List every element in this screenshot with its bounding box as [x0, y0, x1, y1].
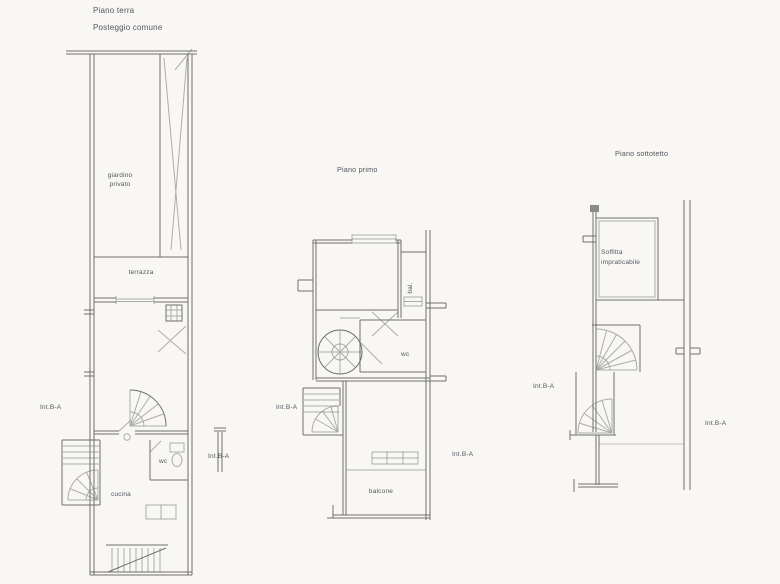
terrace-window — [116, 296, 154, 304]
floorplan-drawing: Piano terra Posteggio comune — [0, 0, 780, 584]
attic-plan: Piano sottotetto Soffitta impraticabile … — [533, 149, 727, 492]
unit-label-right: Int.B-A — [705, 420, 727, 427]
bottom-stair-icon — [106, 545, 168, 572]
plan-title: Piano sottotetto — [615, 149, 668, 158]
page-title: Piano terra — [93, 6, 135, 15]
unit-label-left: Int.B-A — [40, 404, 62, 411]
balcony-label: balcone — [369, 488, 393, 495]
wall-cap — [590, 205, 599, 212]
unit-label-right: Int.B-A — [208, 453, 230, 460]
winder-stair-upper-icon — [592, 325, 640, 372]
garden-label-line2: privato — [110, 181, 131, 188]
kitchen-label: cucina — [111, 491, 131, 498]
neighbor-wall-stub — [214, 428, 226, 472]
exterior-stair-icon — [303, 388, 343, 435]
first-walls — [298, 230, 446, 520]
attic-walls — [574, 200, 700, 492]
bedroom-window — [352, 235, 396, 243]
unit-label-left: Int.B-A — [533, 383, 555, 390]
wc-label: wc — [158, 458, 168, 465]
page-subtitle: Posteggio comune — [93, 23, 163, 32]
terrace-label: terrazza — [128, 269, 153, 276]
plan-title: Piano primo — [337, 165, 378, 174]
first-floor-plan: Piano primo bal. wc Int.B-A Int.B-A balc… — [276, 165, 474, 520]
small-window — [404, 297, 422, 306]
winder-stair-icon — [130, 390, 166, 426]
page-header: Piano terra Posteggio comune — [93, 6, 163, 32]
closet-label: bal. — [407, 282, 414, 293]
entry-door — [119, 420, 131, 440]
unit-label-right: Int.B-A — [452, 451, 474, 458]
attic-label-line2: impraticabile — [601, 259, 640, 266]
garden-label-line1: giardino — [108, 172, 133, 179]
spiral-stair-icon — [318, 330, 362, 374]
kitchen-counter-icon — [146, 505, 176, 519]
scanned-floorplan-page: Piano terra Posteggio comune — [0, 0, 780, 584]
door-swing-lines — [158, 326, 186, 354]
attic-label-line1: Soffitta — [601, 249, 623, 256]
window-radiator-icon — [372, 452, 418, 464]
wc-label: wc — [400, 351, 410, 358]
ground-floor-plan: giardino privato terrazza Int.B-A wc cuc… — [40, 49, 230, 575]
unit-label-left: Int.B-A — [276, 404, 298, 411]
shower-icon — [166, 305, 182, 321]
